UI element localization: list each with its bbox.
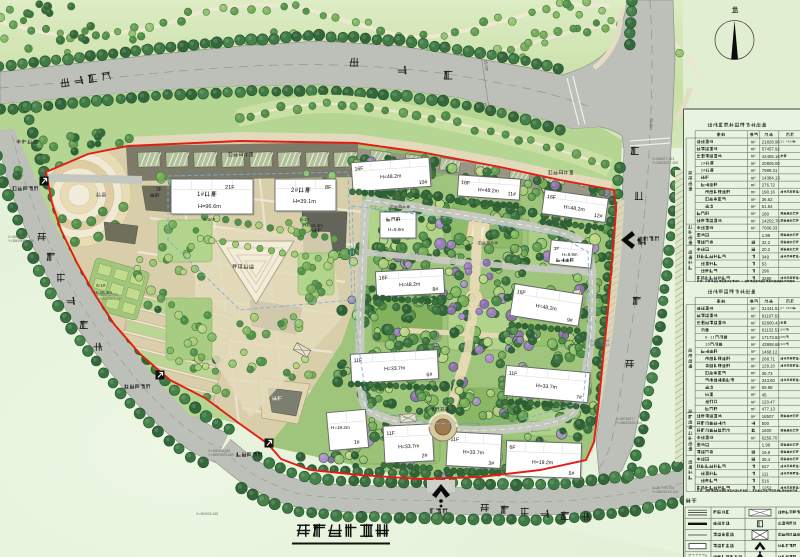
svg-text:25.0m: 25.0m (649, 118, 654, 130)
svg-text:H=39.1m: H=39.1m (293, 199, 316, 205)
svg-text:1.99: 1.99 (762, 233, 771, 238)
svg-text:m²: m² (751, 218, 756, 223)
svg-text:Y=38629227.458: Y=38629227.458 (652, 161, 678, 165)
svg-text:Y=38629169.303: Y=38629169.303 (616, 421, 642, 425)
svg-text:8#: 8# (432, 287, 438, 293)
svg-text:S-1#: S-1# (96, 283, 106, 288)
svg-text:m²: m² (751, 313, 756, 318)
svg-text:8F: 8F (325, 185, 332, 191)
svg-text:7#: 7# (576, 395, 582, 401)
svg-text:21F: 21F (225, 185, 235, 191)
svg-text:m²: m² (751, 335, 756, 340)
svg-text:61.54: 61.54 (762, 204, 773, 209)
svg-text:21828.96: 21828.96 (762, 140, 781, 145)
svg-text:H=48.2m: H=48.2m (399, 281, 420, 288)
svg-text:296: 296 (762, 269, 770, 274)
svg-text:17173.83: 17173.83 (762, 335, 781, 340)
svg-text:m²: m² (751, 226, 756, 231)
svg-text:m²: m² (751, 190, 756, 195)
svg-text:S-3A#: S-3A# (203, 217, 216, 222)
svg-text:7989.31: 7989.31 (762, 168, 778, 173)
svg-text:m²: m² (751, 211, 756, 216)
svg-text:1#: 1# (354, 440, 360, 446)
svg-text:62800.43: 62800.43 (762, 321, 781, 326)
svg-text:m²: m² (751, 175, 756, 180)
svg-text:X=369003.165: X=369003.165 (196, 512, 218, 516)
svg-text:180: 180 (762, 211, 770, 216)
svg-text:H=33.7m: H=33.7m (384, 365, 405, 372)
svg-text:10#: 10# (418, 179, 427, 186)
svg-text:H=19.2m: H=19.2m (331, 425, 350, 430)
svg-text:53: 53 (762, 262, 767, 267)
svg-text:m²: m² (751, 183, 756, 188)
svg-text:Y=38629219.124: Y=38629219.124 (652, 490, 678, 494)
svg-text:m²: m² (751, 328, 756, 333)
svg-text:m²: m² (751, 306, 756, 311)
svg-text:20.2: 20.2 (762, 247, 771, 252)
svg-text:190.16: 190.16 (762, 190, 776, 195)
svg-text:11#: 11# (507, 191, 516, 198)
svg-text:Y=38629051.669: Y=38629051.669 (208, 453, 234, 457)
svg-text:m²: m² (751, 154, 756, 159)
svg-text:3F: 3F (554, 246, 559, 251)
svg-text:14384.13: 14384.13 (762, 175, 781, 180)
svg-text:61132.51: 61132.51 (762, 328, 780, 333)
svg-text:m²: m² (751, 197, 756, 202)
svg-text:H=33.7m: H=33.7m (463, 449, 484, 456)
svg-text:7006.33: 7006.33 (762, 226, 778, 231)
svg-text:9#: 9# (566, 317, 573, 324)
svg-text:6#: 6# (426, 372, 432, 378)
svg-text:Y=38629052.446: Y=38629052.446 (8, 239, 34, 243)
svg-text:5#: 5# (568, 471, 574, 477)
svg-text:3F: 3F (156, 187, 162, 193)
svg-text:3#: 3# (488, 461, 494, 467)
svg-text:31441.51: 31441.51 (762, 306, 781, 311)
svg-text:m²: m² (751, 168, 756, 173)
svg-text:276.72: 276.72 (762, 183, 776, 188)
svg-text:2#: 2# (422, 453, 428, 459)
svg-text:16F: 16F (547, 194, 557, 201)
svg-text:16F: 16F (461, 180, 470, 187)
svg-text:12#: 12# (593, 213, 603, 220)
svg-text:42455.16: 42455.16 (762, 154, 781, 159)
svg-text:16F: 16F (354, 166, 363, 173)
svg-text:H=33.7m: H=33.7m (398, 443, 419, 450)
svg-text:57457.92: 57457.92 (762, 147, 781, 152)
svg-text:m²: m² (751, 204, 756, 209)
svg-text:20805.00: 20805.00 (762, 161, 781, 166)
svg-text:Y=38629007.737: Y=38629007.737 (96, 297, 122, 301)
svg-text:H=9.9m: H=9.9m (388, 227, 404, 232)
svg-text:H=9.9m: H=9.9m (562, 252, 578, 257)
svg-text:m²: m² (751, 139, 756, 144)
svg-text:S-2#: S-2# (300, 217, 310, 222)
svg-text:11F: 11F (508, 371, 517, 378)
svg-text:H=19.2m: H=19.2m (532, 460, 553, 467)
svg-text:H=96.6m: H=96.6m (198, 204, 221, 210)
svg-text:11F: 11F (386, 431, 395, 437)
svg-text:36.62: 36.62 (762, 197, 773, 202)
svg-text:m²: m² (751, 161, 756, 166)
svg-text:32.2: 32.2 (762, 240, 771, 245)
svg-text:m²: m² (751, 147, 756, 152)
svg-text:91107.63: 91107.63 (762, 313, 780, 318)
svg-text:m²: m² (751, 320, 756, 325)
svg-text:6F: 6F (509, 445, 515, 451)
svg-text:H=15.3m: H=15.3m (305, 223, 323, 228)
svg-text:16F: 16F (379, 275, 388, 281)
svg-text:349: 349 (762, 254, 770, 259)
svg-text:14202.76: 14202.76 (762, 219, 781, 224)
svg-text:X=38629253: X=38629253 (590, 343, 609, 347)
